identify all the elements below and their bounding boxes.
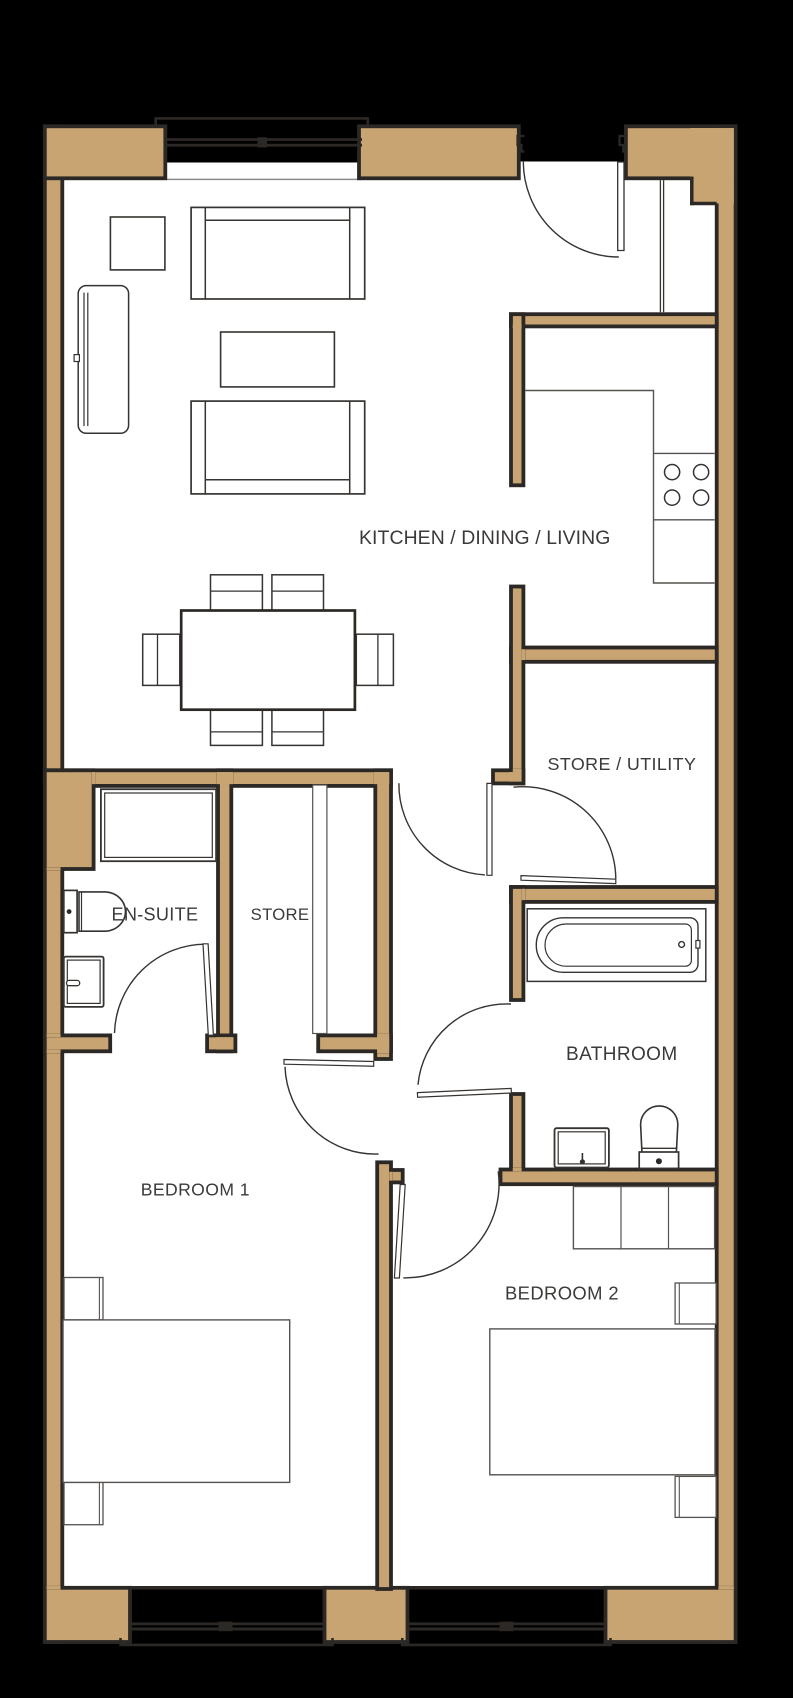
svg-text:KITCHEN / DINING / LIVING: KITCHEN / DINING / LIVING <box>359 527 610 549</box>
svg-text:EN-SUITE: EN-SUITE <box>111 905 198 925</box>
svg-text:STORE / UTILITY: STORE / UTILITY <box>547 754 696 774</box>
svg-text:BATHROOM: BATHROOM <box>566 1044 678 1065</box>
svg-text:STORE: STORE <box>251 905 310 924</box>
svg-text:BEDROOM 1: BEDROOM 1 <box>141 1179 250 1199</box>
svg-text:BEDROOM 2: BEDROOM 2 <box>505 1282 619 1303</box>
